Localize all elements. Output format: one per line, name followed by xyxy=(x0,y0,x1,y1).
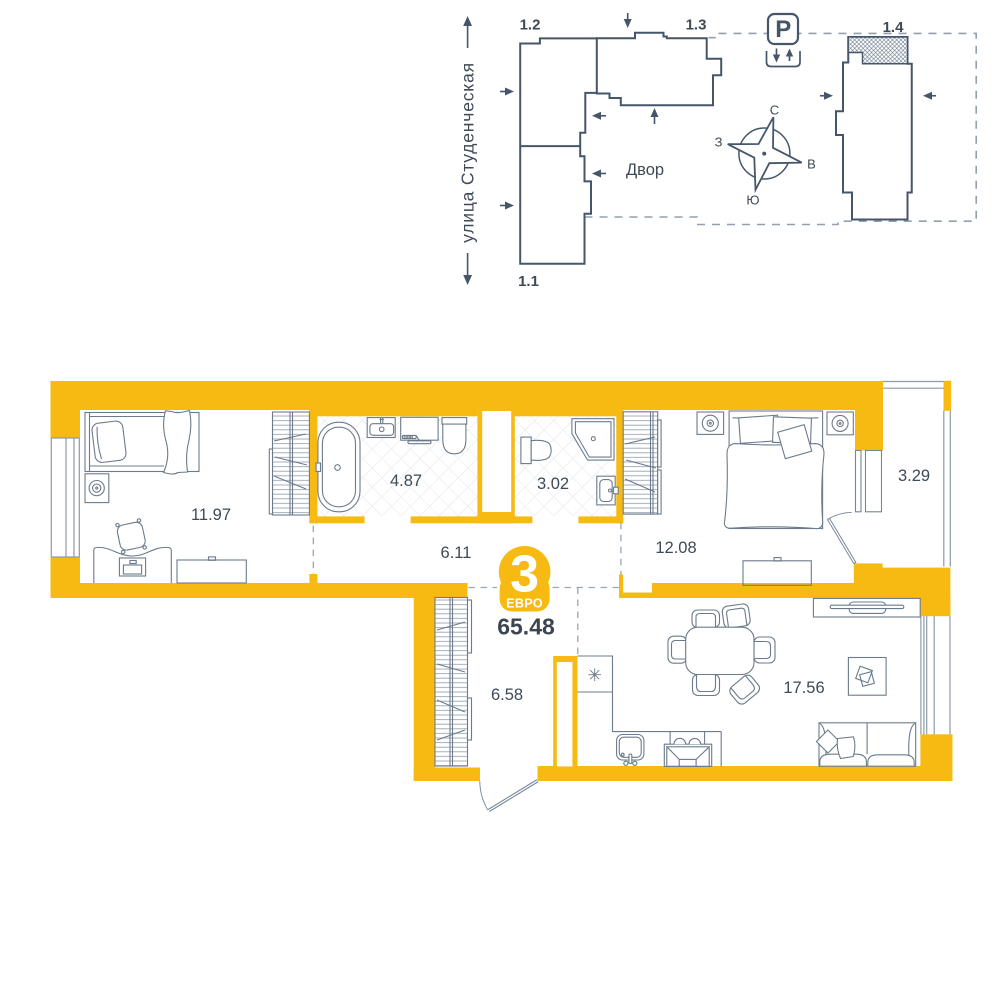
svg-text:1.3: 1.3 xyxy=(686,17,707,34)
svg-text:1.4: 1.4 xyxy=(883,19,905,36)
svg-text:В: В xyxy=(807,157,816,172)
svg-text:улица Студенческая: улица Студенческая xyxy=(458,62,478,243)
svg-text:1.2: 1.2 xyxy=(520,17,541,34)
svg-text:4.87: 4.87 xyxy=(390,472,422,490)
svg-text:11.97: 11.97 xyxy=(191,506,231,524)
svg-text:ЕВРО: ЕВРО xyxy=(506,597,543,611)
svg-text:P: P xyxy=(775,16,791,43)
svg-text:С: С xyxy=(770,103,779,118)
svg-text:17.56: 17.56 xyxy=(783,679,824,697)
svg-text:3.29: 3.29 xyxy=(898,467,930,485)
svg-text:Двор: Двор xyxy=(626,161,664,179)
svg-text:6.58: 6.58 xyxy=(491,686,523,704)
svg-text:З: З xyxy=(715,135,723,150)
svg-text:Ю: Ю xyxy=(746,193,759,208)
svg-text:3: 3 xyxy=(510,546,539,604)
svg-text:65.48: 65.48 xyxy=(497,614,555,640)
svg-text:3.02: 3.02 xyxy=(537,475,569,493)
svg-text:12.08: 12.08 xyxy=(655,539,696,557)
svg-text:1.1: 1.1 xyxy=(518,273,539,290)
svg-text:6.11: 6.11 xyxy=(441,544,472,562)
